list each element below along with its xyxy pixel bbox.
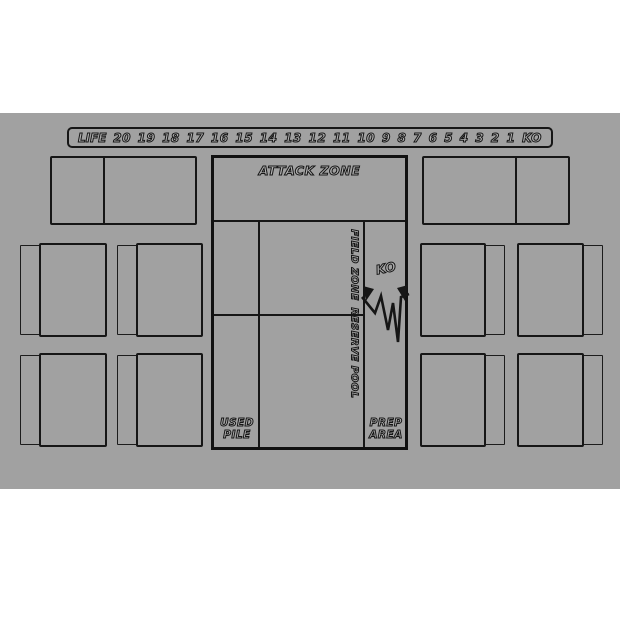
- attack-zone: ATTACK ZONE: [214, 158, 405, 222]
- life-track-value: 15: [235, 131, 253, 145]
- card-slot-area: [136, 353, 203, 447]
- card-slot-left-1: [20, 243, 107, 337]
- playmat-surface: LIFE 2019181716151413121110987654321KO: [0, 113, 620, 489]
- life-track-value: 13: [284, 131, 302, 145]
- life-track-value: 19: [138, 131, 156, 145]
- field-reserve-divider-line: [214, 314, 365, 316]
- card-slot-right-4: [517, 353, 603, 447]
- life-track-value: 2: [491, 131, 500, 145]
- card-slot-area: [39, 353, 107, 447]
- center-zone: ATTACK ZONE FIELD ZONE RESERVE POOL KO U…: [211, 155, 408, 450]
- life-track-value: 10: [357, 131, 375, 145]
- card-slot-area: [517, 353, 584, 447]
- used-pile-label-line1: USED: [220, 417, 254, 429]
- card-slot-strip: [117, 245, 137, 335]
- card-slot-area: [136, 243, 203, 337]
- card-slot-area: [39, 243, 107, 337]
- card-slot-area: [517, 243, 584, 337]
- life-track-value: 9: [382, 131, 391, 145]
- life-track-value: 11: [333, 131, 351, 145]
- prep-area-label-line1: PREP: [369, 417, 403, 429]
- life-track-value: 7: [413, 131, 422, 145]
- life-track-value: 8: [397, 131, 406, 145]
- used-pile-label: USED PILE: [220, 417, 254, 441]
- card-slot-right-3: [420, 353, 505, 447]
- used-pile-column-line: [258, 220, 260, 447]
- prep-area-label-line2: AREA: [369, 429, 403, 441]
- life-track-value: 3: [475, 131, 484, 145]
- ko-zone-label: KO: [374, 259, 397, 278]
- card-pair-divider: [103, 158, 105, 223]
- card-slot-left-2: [117, 243, 203, 337]
- card-slot-area: [420, 353, 486, 447]
- card-slot-left-4: [117, 353, 203, 447]
- card-slot-strip: [583, 355, 603, 445]
- card-slot-strip: [117, 355, 137, 445]
- life-track-value: 17: [187, 131, 205, 145]
- life-track-value: 16: [211, 131, 229, 145]
- card-pair-top-right: [422, 156, 570, 225]
- used-pile-label-line2: PILE: [220, 429, 254, 441]
- card-slot-strip: [583, 245, 603, 335]
- card-slot-left-3: [20, 353, 107, 447]
- life-track-value: 6: [429, 131, 438, 145]
- card-pair-top-left: [50, 156, 197, 225]
- card-slot-area: [420, 243, 486, 337]
- card-slot-right-2: [517, 243, 603, 337]
- card-slot-strip: [20, 245, 40, 335]
- life-track-value: 18: [162, 131, 180, 145]
- life-track-value: 5: [444, 131, 453, 145]
- card-slot-right-1: [420, 243, 505, 337]
- explosion-tear-icon: [360, 284, 411, 350]
- card-slot-strip: [485, 245, 505, 335]
- life-track-value: 14: [260, 131, 278, 145]
- reserve-pool-label: RESERVE POOL: [349, 307, 360, 398]
- life-track-label: LIFE: [78, 131, 107, 145]
- attack-zone-label: ATTACK ZONE: [259, 163, 361, 178]
- life-track: LIFE 2019181716151413121110987654321KO: [67, 127, 553, 148]
- life-track-value: 12: [309, 131, 327, 145]
- life-track-value: 20: [113, 131, 131, 145]
- card-pair-divider: [515, 158, 517, 223]
- life-track-value: KO: [522, 131, 542, 145]
- field-zone-label: FIELD ZONE: [349, 229, 360, 301]
- life-track-value: 4: [460, 131, 469, 145]
- life-track-value: 1: [507, 131, 516, 145]
- prep-area-label: PREP AREA: [369, 417, 403, 441]
- card-slot-strip: [20, 355, 40, 445]
- card-slot-strip: [485, 355, 505, 445]
- playmat-page: LIFE 2019181716151413121110987654321KO: [0, 0, 620, 620]
